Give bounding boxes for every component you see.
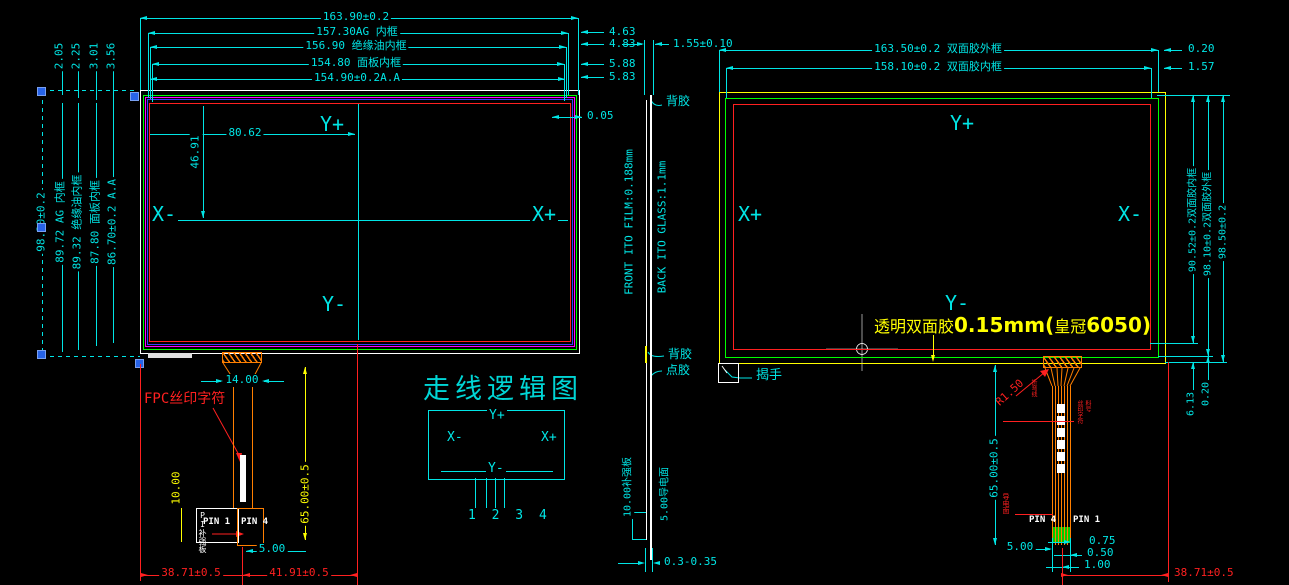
dim-arrow [141, 573, 148, 577]
peel-tab-box [718, 363, 739, 383]
silk-note: 料号 [1084, 400, 1090, 412]
dim-line [96, 70, 97, 100]
dim-label: 0.20 [1200, 380, 1212, 408]
ext-line [645, 548, 646, 572]
dim-arrow [655, 42, 662, 46]
dim-label: 90.52±0.2双面胶内框 [1187, 166, 1199, 274]
axis-label-xplus: X+ [530, 204, 558, 224]
adhesive-note-brand: 皇冠 [1054, 313, 1086, 337]
glue-strip-mark [645, 346, 647, 363]
dim-label: 154.90±0.2A.A [312, 72, 402, 85]
fpc-connector-hatch [1043, 356, 1082, 368]
dim-arrow [637, 42, 644, 46]
bracket-line [632, 512, 646, 513]
adhesive-note-text: 透明双面胶 [874, 313, 954, 337]
note-leader-line [933, 335, 934, 355]
dim-line [203, 106, 204, 218]
ext-line [644, 40, 645, 95]
dim-arrow [1206, 95, 1210, 102]
dim-arrow [726, 66, 733, 70]
dim-arrow [1221, 355, 1225, 362]
dim-arrow [1151, 48, 1158, 52]
dim-label: 5.00导电面 [659, 465, 671, 523]
bracket-line [632, 539, 646, 540]
dim-label: 46.91 [190, 133, 203, 170]
dim-label: 5.00 [257, 543, 288, 556]
axis-label-xminus: X- [1116, 204, 1144, 224]
dim-line [78, 70, 79, 98]
dim-label: 89.72 AG 内框 [55, 179, 68, 265]
dim-arrow [993, 538, 997, 545]
dim-label: 86.70±0.2 A.A [107, 177, 120, 267]
axis-label-xminus: X- [150, 204, 178, 224]
dim-label: 3.01 [89, 41, 102, 72]
dim-label: 163.90±0.2 [321, 11, 391, 24]
logic-yplus: Y+ [487, 409, 507, 424]
adhesive-note-thickness: 0.15mm( [954, 313, 1054, 337]
dim-label: 65.00±0.5 [989, 436, 1002, 500]
glue-label-bottom: 背胶 [666, 348, 694, 362]
dim-label: 98.30±0.2 [36, 190, 49, 254]
dim-line [1062, 575, 1168, 576]
ext-line [150, 47, 151, 99]
dim-label: 6.13 [1185, 390, 1197, 418]
dim-arrow [1062, 565, 1069, 569]
dim-line [113, 70, 114, 103]
dim-label: 5.88 [607, 58, 638, 71]
dim-arrow [559, 45, 566, 49]
dim-label: 2.25 [71, 41, 84, 72]
glue-label-top: 背胶 [664, 95, 692, 109]
dim-label: 10.00 [171, 469, 184, 506]
dim-arrow [653, 561, 660, 565]
ext-line [653, 40, 654, 95]
ext-line [242, 547, 243, 585]
dim-label: 157.30AG 内框 [314, 26, 400, 39]
dim-arrow [581, 30, 588, 34]
silkscreen-block [1057, 428, 1065, 437]
illegible-small-label [148, 353, 192, 358]
dim-label: 98.50±0.2 [1217, 203, 1229, 261]
logic-trace [475, 478, 476, 508]
dim-label: 5.00 [1005, 541, 1036, 554]
axis-label-yplus: Y+ [948, 113, 976, 133]
dim-arrow [150, 45, 157, 49]
dim-arrow [1221, 95, 1225, 102]
dim-label: 89.32 绝缘油内框 [72, 173, 85, 272]
dim-line [618, 563, 638, 564]
ext-line [140, 18, 141, 90]
axis-label-yminus: Y- [320, 294, 348, 314]
fpc-trace [1067, 386, 1068, 545]
logic-trace [486, 478, 487, 508]
pin1-label: PIN 1 [203, 518, 230, 527]
silkscreen-block [1057, 464, 1065, 473]
dim-label: 5.83 [607, 71, 638, 84]
dim-arrow [216, 379, 223, 383]
dim-arrow [561, 31, 568, 35]
logic-title: 走线逻辑图 [423, 376, 583, 403]
pin4-label: PIN 4 [1029, 516, 1056, 525]
ext-line [719, 50, 720, 92]
dim-arrow [1206, 349, 1210, 356]
dotglue-leader-hook [651, 371, 662, 376]
ext-line [1062, 548, 1063, 585]
dim-arrow [152, 62, 159, 66]
dim-arrow [148, 31, 155, 35]
axis-label-xplus: X+ [736, 204, 764, 224]
dim-arrow [581, 42, 588, 46]
dim-arrow [557, 62, 564, 66]
conductive-note: 导电面 [1002, 493, 1009, 514]
axis-label-yminus: Y- [943, 293, 971, 313]
logic-pin-numbers: 1 2 3 4 [466, 509, 553, 524]
logic-trace [504, 478, 505, 508]
centerline-h [150, 220, 568, 221]
logic-yminus: Y- [486, 462, 506, 477]
dim-arrow [581, 62, 588, 66]
ext-line [566, 47, 567, 98]
fan-trace [1067, 368, 1074, 386]
fpc-silkscreen-bar [240, 455, 246, 502]
dim-label: 0.05 [585, 110, 616, 123]
selected-dim-line [42, 90, 137, 91]
dim-arrow [993, 365, 997, 372]
note-leader-arrow [931, 355, 935, 362]
logic-xplus: X+ [539, 431, 559, 446]
dim-arrow [243, 573, 250, 577]
dim-label: 156.90 绝缘油内框 [303, 40, 408, 53]
fan-trace [1051, 368, 1055, 386]
dim-arrow [246, 549, 253, 553]
ext-line [726, 68, 727, 98]
dim-label: 98.10±0.2双面胶外框 [1202, 170, 1214, 278]
dim-label: 87.80 面板内框 [90, 178, 103, 266]
ext-line [152, 64, 153, 102]
centerline-v [358, 104, 359, 340]
dim-line [1164, 68, 1182, 69]
dim-label: 10.00补强板 [622, 455, 634, 519]
glass-section-line [650, 95, 652, 560]
fan-trace [1061, 368, 1062, 386]
dim-label: 154.80 面板内框 [309, 57, 403, 70]
bend-note: 折弯线 [1030, 379, 1036, 397]
peel-tab-label: 揭手 [754, 369, 784, 384]
ext-line [1165, 362, 1227, 363]
dim-line [181, 508, 182, 542]
dim-arrow [1045, 547, 1052, 551]
dim-label: 1.00 [1082, 559, 1113, 572]
adhesive-note-model: 6050) [1086, 313, 1151, 337]
fan-trace [1064, 368, 1068, 386]
dim-arrow [1161, 573, 1168, 577]
dim-arrow [571, 16, 578, 20]
silk-leader-line [213, 408, 239, 459]
grip-handle[interactable] [37, 87, 46, 96]
dim-arrow [1206, 356, 1210, 363]
ext-line [1168, 362, 1169, 582]
axis-label-yplus: Y+ [318, 114, 346, 134]
ext-line [1150, 343, 1198, 344]
grip-handle[interactable] [37, 350, 46, 359]
dim-label: 0.3-0.35 [662, 556, 719, 569]
dim-label: 0.20 [1186, 43, 1217, 56]
dim-arrow [1191, 336, 1195, 343]
dim-arrow [1064, 540, 1071, 544]
dim-arrow [581, 75, 588, 79]
logic-trace [495, 478, 496, 508]
ext-line [357, 344, 358, 585]
dim-label: 38.71±0.5 [159, 567, 223, 580]
dim-arrow [303, 367, 307, 374]
fpc-silk-label: FPC丝印字符 [142, 391, 227, 407]
dim-line [1048, 542, 1064, 543]
ext-line [148, 33, 149, 98]
leader-line [1003, 421, 1074, 422]
fpc-foot-box [237, 508, 264, 546]
dim-label: 38.71±0.5 [1172, 567, 1236, 580]
dim-line [1054, 555, 1082, 556]
film-section-line [646, 100, 647, 540]
pin1-label: PIN 1 [1073, 516, 1100, 525]
dim-arrow [1061, 573, 1068, 577]
leader-line [1015, 514, 1053, 515]
grip-handle[interactable] [37, 223, 46, 232]
dim-arrow [350, 573, 357, 577]
ext-line [564, 64, 565, 101]
dim-arrow [1070, 553, 1077, 557]
dim-arrow [552, 115, 559, 119]
dim-line [62, 70, 63, 95]
ext-line [1151, 68, 1152, 98]
ext-line [140, 364, 141, 581]
selected-dim-line [42, 356, 140, 357]
silkscreen-block [1057, 440, 1065, 449]
pin4-label: PIN 4 [241, 518, 268, 527]
dot-glue-label: 点胶 [664, 364, 692, 378]
dim-arrow [201, 211, 205, 218]
fpc-trace [1070, 386, 1071, 545]
dim-label: 2.05 [54, 41, 67, 72]
dim-arrow [1144, 66, 1151, 70]
active-area-red [149, 103, 571, 342]
dim-arrow [1191, 95, 1195, 102]
dim-label: 65.00±0.5 [300, 462, 313, 526]
dim-label: 41.91±0.5 [267, 567, 331, 580]
dim-arrow [1191, 362, 1195, 369]
dim-arrow [140, 16, 147, 20]
fan-trace [1057, 368, 1058, 386]
silkscreen-block [1057, 452, 1065, 461]
dim-arrow [303, 533, 307, 540]
dim-arrow [348, 132, 355, 136]
logic-xminus: X- [445, 431, 465, 446]
dim-arrow [262, 379, 269, 383]
ext-line [578, 18, 579, 95]
fpc-tail-edge [252, 380, 253, 508]
glass-stack-label: BACK ITO GLASS:1.1mm [657, 159, 670, 295]
dim-label: 1.57 [1186, 61, 1217, 74]
glue-leader-hook [651, 100, 662, 105]
stiffener-label: PI补强板 [198, 511, 206, 553]
dim-label: 80.62 [226, 127, 263, 140]
dim-line [1164, 50, 1182, 51]
dim-label: 158.10±0.2 双面胶内框 [872, 61, 1004, 74]
dim-arrow [719, 48, 726, 52]
fpc-tail-edge [233, 380, 234, 508]
dim-arrow [575, 115, 582, 119]
cad-canvas: Y+ X- X+ Y- 80.62 46.91 163.90±0.2 157.3… [0, 0, 1289, 585]
adhesive-note: 透明双面胶0.15mm(皇冠6050) [874, 313, 1151, 337]
dim-label: 14.00 [223, 374, 260, 387]
ext-line [568, 33, 569, 95]
dim-label: 3.56 [106, 41, 119, 72]
dim-arrow [638, 561, 645, 565]
ext-line [1158, 50, 1159, 92]
fpc-connector-hatch [222, 352, 262, 363]
film-stack-label: FRONT ITO FILM:0.188mm [624, 147, 637, 297]
silk-note: 丝印字符 [1076, 400, 1082, 424]
silkscreen-block [1057, 404, 1065, 413]
fan-trace [1070, 368, 1080, 386]
grip-handle[interactable] [130, 92, 139, 101]
dim-label: 163.50±0.2 双面胶外框 [872, 43, 1004, 56]
